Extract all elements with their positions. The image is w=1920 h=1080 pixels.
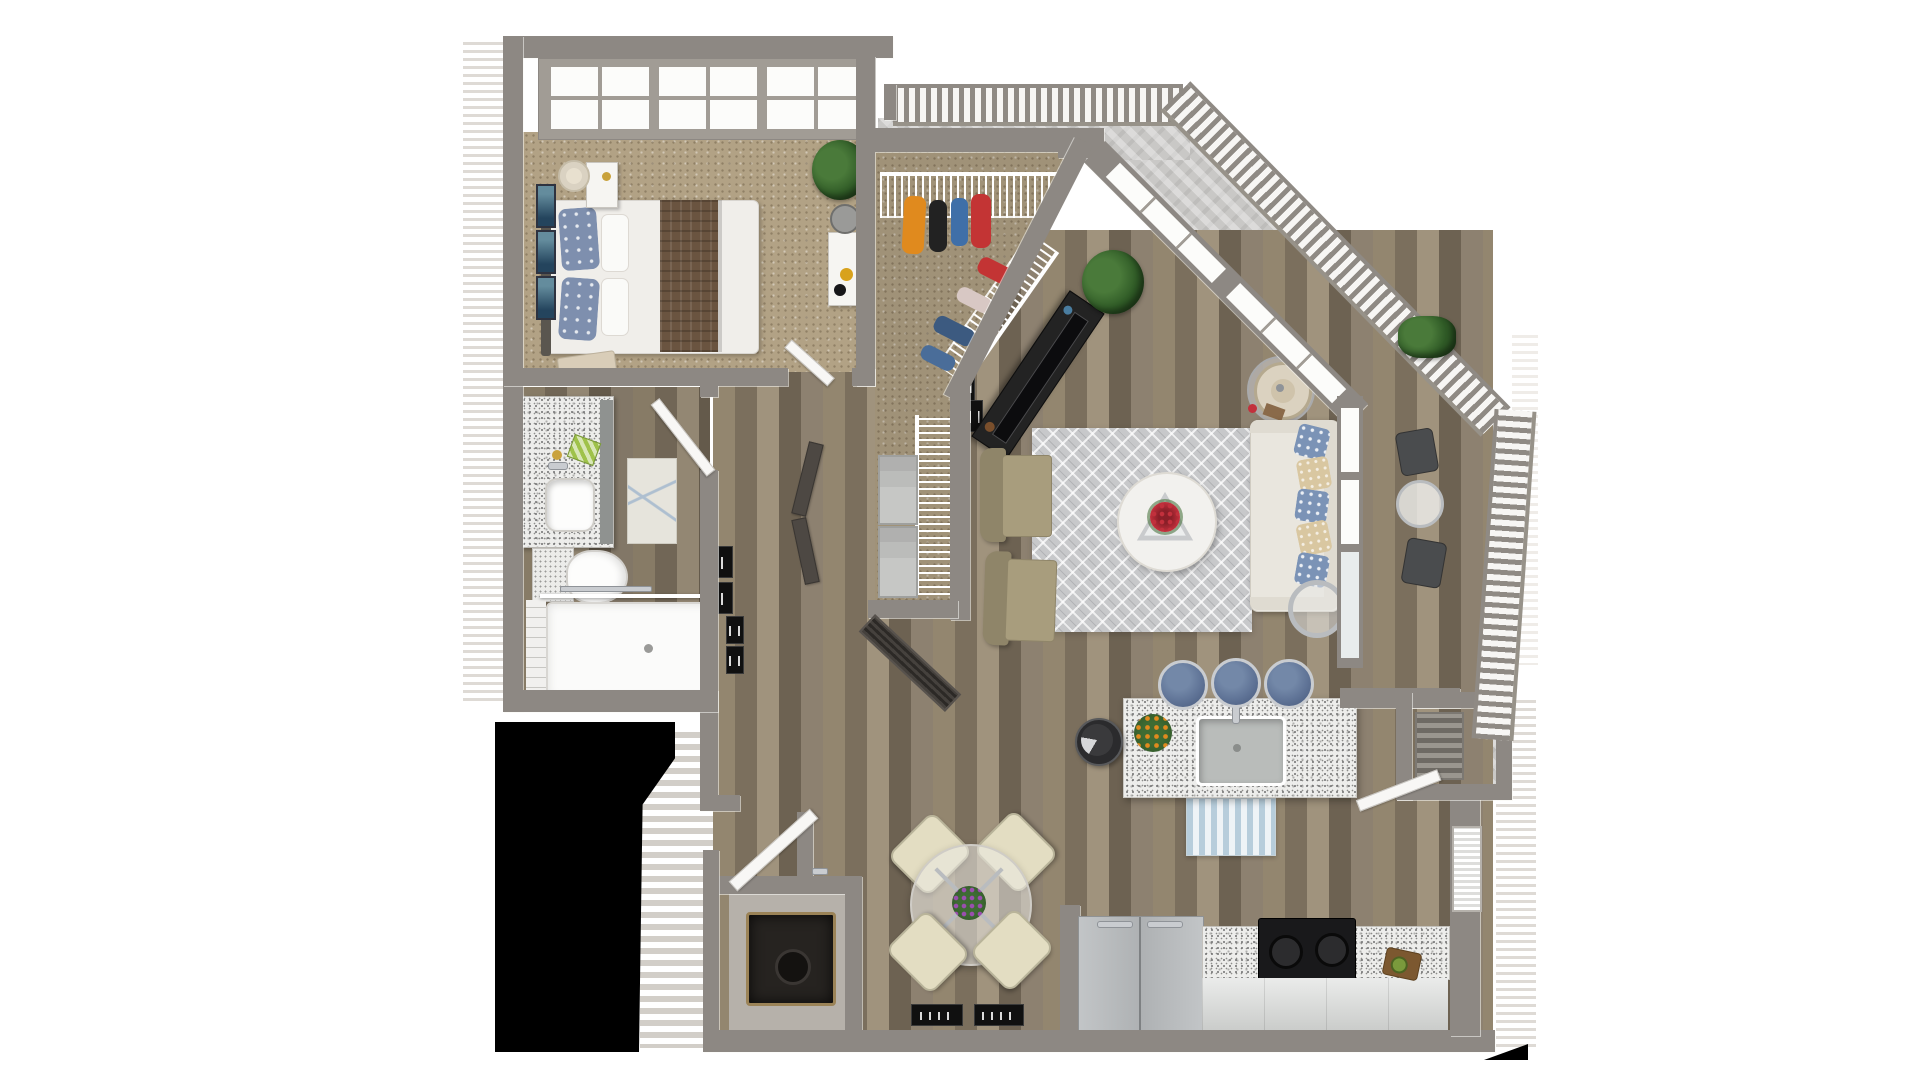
vanity-sink	[545, 478, 595, 532]
robot-vacuum-lid	[1081, 724, 1113, 756]
bedroom-window-2	[659, 67, 757, 129]
wall-art-frame-1	[536, 184, 556, 228]
fridge-handle-2	[1147, 921, 1183, 928]
burner-1	[1269, 935, 1303, 969]
shower-pan	[546, 602, 718, 700]
balcony-shrub	[1398, 316, 1456, 358]
balcony-glass-door	[1341, 552, 1359, 658]
wall-laundry-living	[950, 385, 970, 620]
bedroom-window-band	[538, 58, 876, 140]
water-heater-cap	[775, 949, 811, 985]
bed-pillow-white-2	[601, 278, 629, 336]
bed-throw-blanket	[660, 200, 718, 352]
entry-frame-1	[726, 616, 744, 644]
bed-fold-shadow	[718, 200, 722, 352]
wall-art-frame-3	[536, 276, 556, 320]
armchair-2	[982, 551, 1057, 647]
island-flowers	[1134, 714, 1172, 752]
vanity-gold-dish	[552, 450, 562, 460]
dining-centerpiece	[952, 886, 986, 920]
wall-entry-stub	[700, 795, 740, 811]
wall-utility-right	[845, 894, 862, 1034]
kitchen-window-blinds	[1452, 826, 1482, 912]
desk-bowl-black	[834, 284, 846, 296]
bar-stool-2	[1211, 658, 1261, 708]
coffee-table-flowers	[1150, 502, 1180, 532]
balcony-storage-shelf	[1415, 712, 1464, 780]
shower-drain	[644, 644, 653, 653]
bed-pillow-blue-2	[558, 277, 600, 341]
water-heater	[746, 912, 836, 1006]
floorplan-canvas	[0, 0, 1920, 1080]
dining-wall-frame-1	[911, 1004, 963, 1026]
bath-rug	[627, 458, 677, 544]
wall-bath-bottom	[503, 690, 718, 712]
clothes-black	[929, 200, 947, 252]
kitchen-left-stub	[1060, 905, 1080, 1032]
avocado	[1389, 955, 1409, 975]
patio-chair-2	[1400, 537, 1447, 589]
armchair-2-seat	[1005, 559, 1058, 643]
armchair-1-seat	[1002, 455, 1052, 537]
bedroom-window-3	[767, 67, 865, 129]
wall-bottom-main	[703, 1030, 1495, 1052]
bar-stool-3	[1264, 659, 1314, 709]
hall-frame-2	[718, 582, 733, 614]
right-window-2	[1341, 480, 1359, 544]
right-window-wall	[1337, 396, 1363, 668]
island-rug	[1186, 798, 1276, 856]
vanity-faucet	[548, 462, 568, 470]
vanity-cabinet-edge	[600, 400, 613, 544]
cabinet-faces	[1202, 978, 1448, 1032]
sofa-pillow-2	[1295, 455, 1332, 492]
wall-laundry-bottom	[868, 600, 958, 618]
dining-wall-frame-2	[974, 1004, 1024, 1026]
lamp-finial	[1276, 384, 1284, 392]
wall-bedroom-bath-divider-left	[503, 368, 788, 386]
armchair-1	[980, 448, 1052, 542]
wall-utility-left	[703, 850, 719, 1048]
railing-end-cap	[884, 84, 896, 120]
wall-bedroom-closet	[856, 56, 875, 386]
sofa-pillow-4	[1295, 519, 1333, 557]
robot-vacuum	[1075, 718, 1123, 766]
living-corner-plant	[1082, 250, 1144, 314]
island-sink	[1196, 716, 1286, 786]
decor-red-ball	[1248, 404, 1257, 413]
storage-basket-1	[878, 455, 918, 525]
desk-bowl-yellow	[840, 268, 853, 281]
fridge	[1078, 916, 1204, 1034]
alarm-clock	[602, 172, 611, 181]
nightstand	[586, 162, 618, 208]
counter-left-of-range	[1202, 926, 1262, 980]
railing-top	[893, 84, 1183, 126]
burner-2	[1315, 933, 1349, 967]
clothes-red	[971, 194, 991, 248]
bed-pillow-blue-1	[558, 207, 600, 271]
wall-art-frame-2	[536, 230, 556, 274]
shower-towel-bar	[560, 586, 652, 592]
wall-bath-hall-upper	[700, 385, 718, 397]
island-drain	[1233, 744, 1241, 752]
wall-bedroom-top	[503, 36, 893, 58]
sofa-pillow-3	[1294, 488, 1330, 524]
utility-faucet	[812, 868, 828, 875]
shower-tile-wall	[526, 600, 546, 698]
patio-chair-1	[1394, 427, 1439, 477]
table-lamp	[558, 160, 590, 192]
bedroom-window-1	[551, 67, 649, 129]
bistro-table	[1396, 480, 1444, 528]
fridge-door-seam	[1139, 917, 1141, 1033]
right-window-1	[1341, 408, 1359, 472]
clothes-orange	[901, 195, 926, 254]
wall-bath-hall-lower	[700, 470, 718, 803]
clothes-blue	[951, 198, 968, 246]
storage-basket-2	[878, 526, 918, 598]
fridge-handle-1	[1097, 921, 1133, 928]
hall-frame-1	[718, 546, 733, 578]
bed-pillow-white-1	[601, 214, 629, 272]
shower-glass-panel	[540, 594, 718, 598]
bar-stool-1	[1158, 660, 1208, 710]
entry-frame-2	[726, 646, 744, 674]
